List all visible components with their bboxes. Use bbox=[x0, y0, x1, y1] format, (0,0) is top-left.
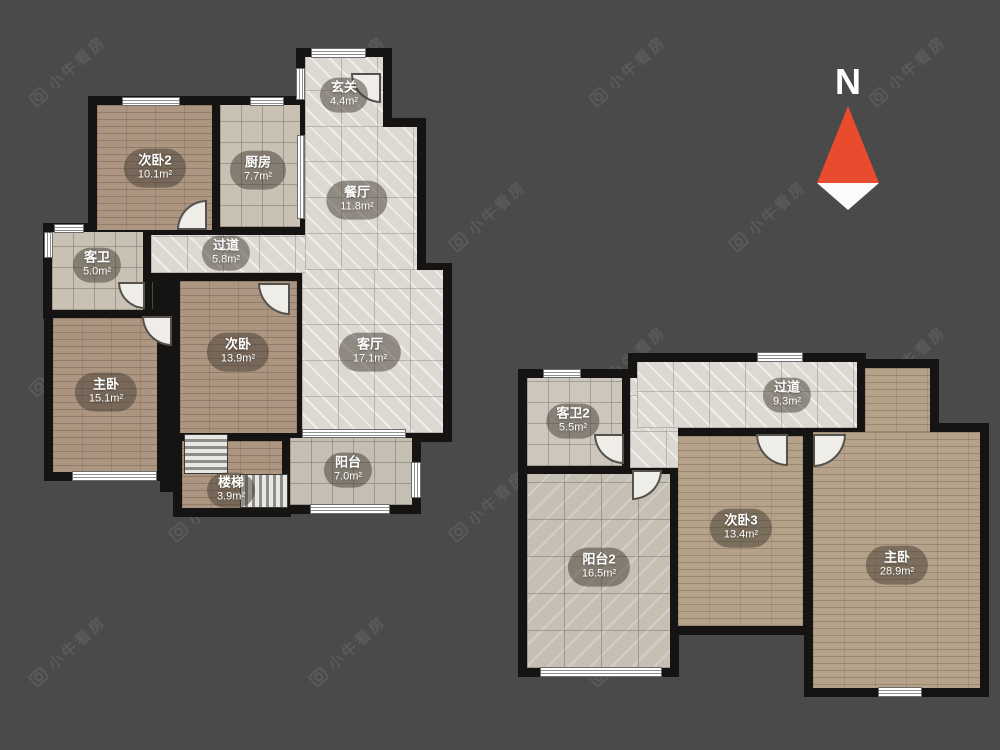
wall bbox=[153, 277, 183, 439]
room-area: 17.1m² bbox=[353, 352, 387, 365]
window bbox=[540, 667, 662, 677]
room-label-bedroom3: 次卧3 13.4m² bbox=[710, 509, 772, 548]
window bbox=[310, 504, 390, 514]
compass-arrow-icon bbox=[817, 106, 879, 183]
room-name: 客卫 bbox=[83, 250, 111, 266]
watermark-logo-icon bbox=[307, 666, 330, 689]
room-area: 28.9m² bbox=[880, 565, 914, 578]
watermark-logo-icon bbox=[27, 666, 50, 689]
room-name: 厨房 bbox=[244, 155, 272, 171]
watermark-logo-icon bbox=[587, 86, 610, 109]
watermark-text: 小牛看房 bbox=[323, 611, 391, 675]
room-floor-master2-upper bbox=[865, 368, 930, 432]
window bbox=[122, 97, 180, 106]
window bbox=[543, 369, 581, 378]
watermark-text: 小牛看房 bbox=[743, 176, 811, 240]
watermark-logo-icon bbox=[447, 231, 470, 254]
window bbox=[411, 462, 421, 498]
room-name: 主卧 bbox=[880, 550, 914, 566]
north-label: N bbox=[812, 64, 884, 100]
room-area: 5.0m² bbox=[83, 265, 111, 278]
window bbox=[250, 97, 284, 106]
window bbox=[296, 68, 305, 100]
watermark-text: 小牛看房 bbox=[463, 176, 531, 240]
window bbox=[757, 352, 803, 362]
wall bbox=[160, 430, 182, 492]
room-label-entry: 玄关 4.4m² bbox=[320, 78, 368, 113]
room-area: 3.9m² bbox=[217, 490, 245, 503]
room-area: 16.5m² bbox=[582, 567, 616, 580]
watermark: 小牛看房 bbox=[585, 31, 670, 111]
room-label-hallway2: 过道 9.3m² bbox=[763, 378, 811, 413]
watermark-text: 小牛看房 bbox=[43, 31, 111, 95]
stairs-flight bbox=[184, 434, 228, 474]
room-name: 主卧 bbox=[89, 377, 123, 393]
room-label-kitchen: 厨房 7.7m² bbox=[230, 151, 286, 190]
room-name: 阳台 bbox=[334, 455, 362, 471]
room-area: 4.4m² bbox=[330, 95, 358, 108]
room-label-hallway: 过道 5.8m² bbox=[202, 236, 250, 271]
room-name: 餐厅 bbox=[340, 185, 373, 201]
room-name: 阳台2 bbox=[582, 552, 616, 568]
room-area: 15.1m² bbox=[89, 392, 123, 405]
room-label-master: 主卧 15.1m² bbox=[75, 373, 137, 412]
room-label-dining: 餐厅 11.8m² bbox=[326, 181, 387, 220]
room-label-balcony2: 阳台2 16.5m² bbox=[568, 548, 630, 587]
window bbox=[72, 471, 157, 481]
window bbox=[311, 48, 366, 58]
room-area: 5.8m² bbox=[212, 253, 240, 266]
watermark-text: 小牛看房 bbox=[883, 31, 951, 95]
room-label-guest-bath2: 客卫2 5.5m² bbox=[546, 404, 599, 439]
room-name: 客厅 bbox=[353, 337, 387, 353]
room-name: 次卧3 bbox=[724, 513, 758, 529]
room-label-master2: 主卧 28.9m² bbox=[866, 546, 928, 585]
room-area: 13.9m² bbox=[221, 352, 255, 365]
watermark-logo-icon bbox=[167, 521, 190, 544]
watermark-text: 小牛看房 bbox=[43, 611, 111, 675]
room-label-living: 客厅 17.1m² bbox=[339, 333, 401, 372]
room-area: 7.0m² bbox=[334, 470, 362, 483]
window bbox=[878, 687, 922, 697]
watermark-logo-icon bbox=[727, 231, 750, 254]
watermark-logo-icon bbox=[447, 521, 470, 544]
room-name: 过道 bbox=[212, 238, 240, 254]
room-name: 客卫2 bbox=[556, 406, 589, 422]
room-label-stairs: 楼梯 3.9m² bbox=[207, 473, 255, 508]
room-name: 过道 bbox=[773, 380, 801, 396]
floorplan-canvas: 小牛看房 小牛看房 小牛看房 小牛看房 小牛看房 小牛看房 小牛看房 小牛看房 … bbox=[0, 0, 1000, 750]
room-name: 玄关 bbox=[330, 80, 358, 96]
watermark: 小牛看房 bbox=[725, 176, 810, 256]
window bbox=[302, 429, 406, 438]
room-name: 次卧 bbox=[221, 337, 255, 353]
watermark: 小牛看房 bbox=[445, 176, 530, 256]
room-name: 楼梯 bbox=[217, 475, 245, 491]
room-label-bedroom: 次卧 13.9m² bbox=[207, 333, 269, 372]
watermark-logo-icon bbox=[27, 86, 50, 109]
room-area: 5.5m² bbox=[556, 421, 589, 434]
room-label-bedroom2: 次卧2 10.1m² bbox=[124, 149, 186, 188]
watermark-text: 小牛看房 bbox=[603, 31, 671, 95]
watermark: 小牛看房 bbox=[25, 611, 110, 691]
room-floor-hallway2 bbox=[637, 362, 857, 428]
north-compass: N bbox=[812, 64, 884, 210]
room-area: 13.4m² bbox=[724, 528, 758, 541]
room-area: 10.1m² bbox=[138, 168, 172, 181]
window bbox=[44, 232, 53, 258]
room-label-guest-bath: 客卫 5.0m² bbox=[73, 248, 121, 283]
compass-arrow-tail-icon bbox=[817, 183, 879, 210]
room-area: 9.3m² bbox=[773, 395, 801, 408]
room-area: 11.8m² bbox=[340, 200, 373, 213]
window bbox=[297, 135, 305, 219]
window bbox=[54, 224, 84, 233]
room-area: 7.7m² bbox=[244, 170, 272, 183]
watermark: 小牛看房 bbox=[305, 611, 390, 691]
room-label-balcony: 阳台 7.0m² bbox=[324, 453, 372, 488]
room-name: 次卧2 bbox=[138, 153, 172, 169]
